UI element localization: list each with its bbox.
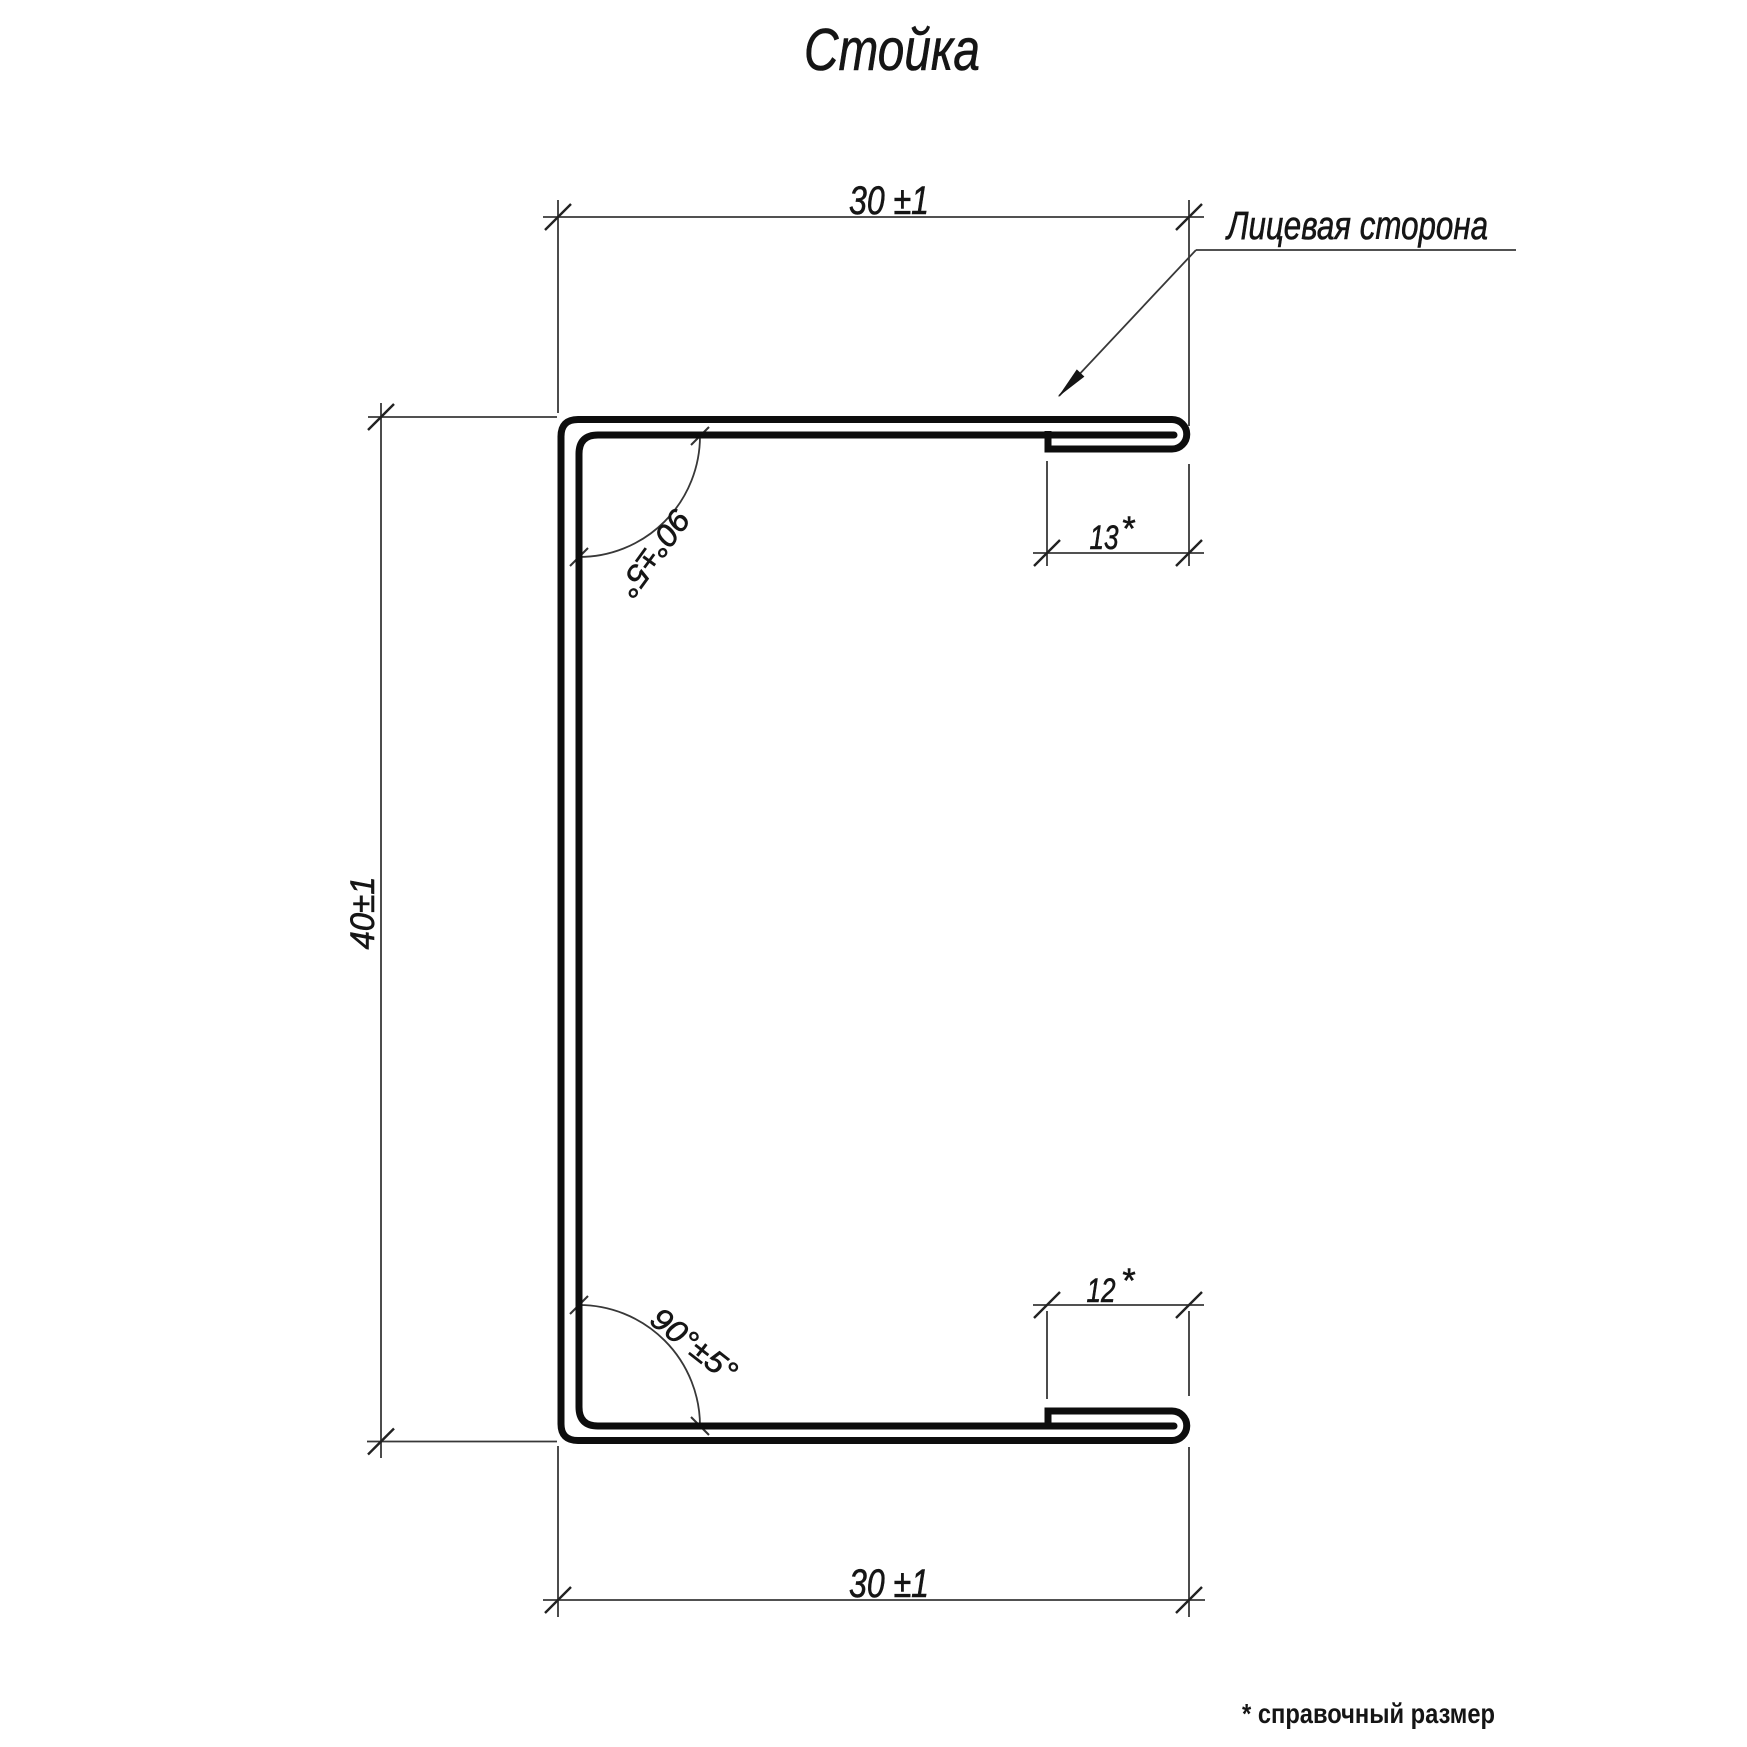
svg-text:13: 13 xyxy=(1090,519,1119,557)
svg-text:Лицевая сторона: Лицевая сторона xyxy=(1225,204,1488,248)
svg-text:40±1: 40±1 xyxy=(344,877,382,950)
svg-text:30 ±1: 30 ±1 xyxy=(849,1562,929,1606)
svg-text:*: * xyxy=(1121,510,1136,548)
svg-text:* справочный размер: * справочный размер xyxy=(1242,1698,1495,1729)
svg-text:*: * xyxy=(1121,1262,1136,1300)
svg-text:30 ±1: 30 ±1 xyxy=(849,179,929,223)
svg-text:Стойка: Стойка xyxy=(804,17,980,83)
svg-text:12: 12 xyxy=(1087,1272,1116,1310)
